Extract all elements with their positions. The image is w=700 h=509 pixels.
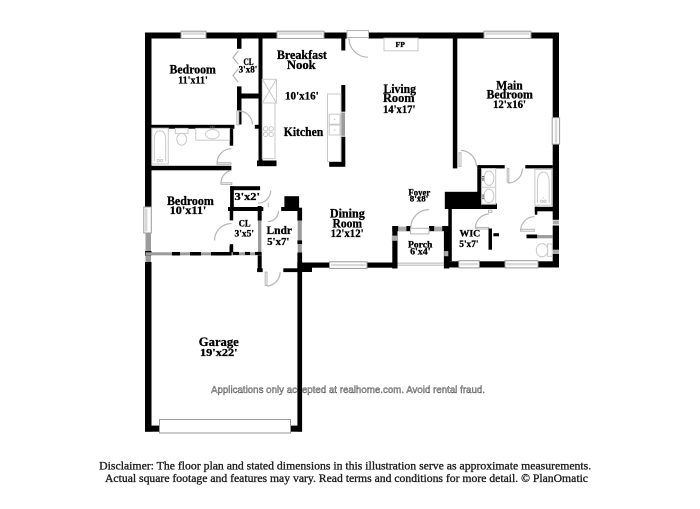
svg-text:12'x16': 12'x16' bbox=[493, 99, 526, 111]
svg-text:12'x12': 12'x12' bbox=[331, 228, 364, 240]
svg-text:5'x7': 5'x7' bbox=[459, 240, 478, 250]
svg-text:CL: CL bbox=[239, 219, 251, 229]
svg-text:Room: Room bbox=[383, 90, 415, 105]
svg-text:WIC: WIC bbox=[460, 229, 481, 239]
svg-text:19'x22': 19'x22' bbox=[200, 347, 238, 359]
svg-text:Actual square footage and feat: Actual square footage and features may v… bbox=[105, 473, 588, 485]
svg-text:6'x4': 6'x4' bbox=[410, 248, 430, 258]
svg-text:3'x5': 3'x5' bbox=[235, 230, 255, 240]
svg-text:3'x2': 3'x2' bbox=[235, 191, 260, 203]
svg-text:10'x11': 10'x11' bbox=[170, 205, 207, 217]
svg-text:Disclaimer: The floor plan and: Disclaimer: The floor plan and stated di… bbox=[99, 460, 591, 472]
svg-text:Kitchen: Kitchen bbox=[284, 124, 324, 139]
svg-text:3'x8': 3'x8' bbox=[239, 64, 258, 74]
svg-text:10'x16': 10'x16' bbox=[285, 90, 319, 102]
svg-text:8'x8': 8'x8' bbox=[410, 195, 428, 204]
svg-text:Applications only accepted at: Applications only accepted at realhome.c… bbox=[211, 384, 485, 396]
svg-text:Nook: Nook bbox=[287, 57, 317, 72]
svg-text:11'x11': 11'x11' bbox=[178, 74, 208, 86]
svg-text:5'x7': 5'x7' bbox=[267, 236, 289, 248]
svg-text:FP: FP bbox=[396, 40, 406, 49]
svg-text:14'x17': 14'x17' bbox=[383, 104, 416, 116]
